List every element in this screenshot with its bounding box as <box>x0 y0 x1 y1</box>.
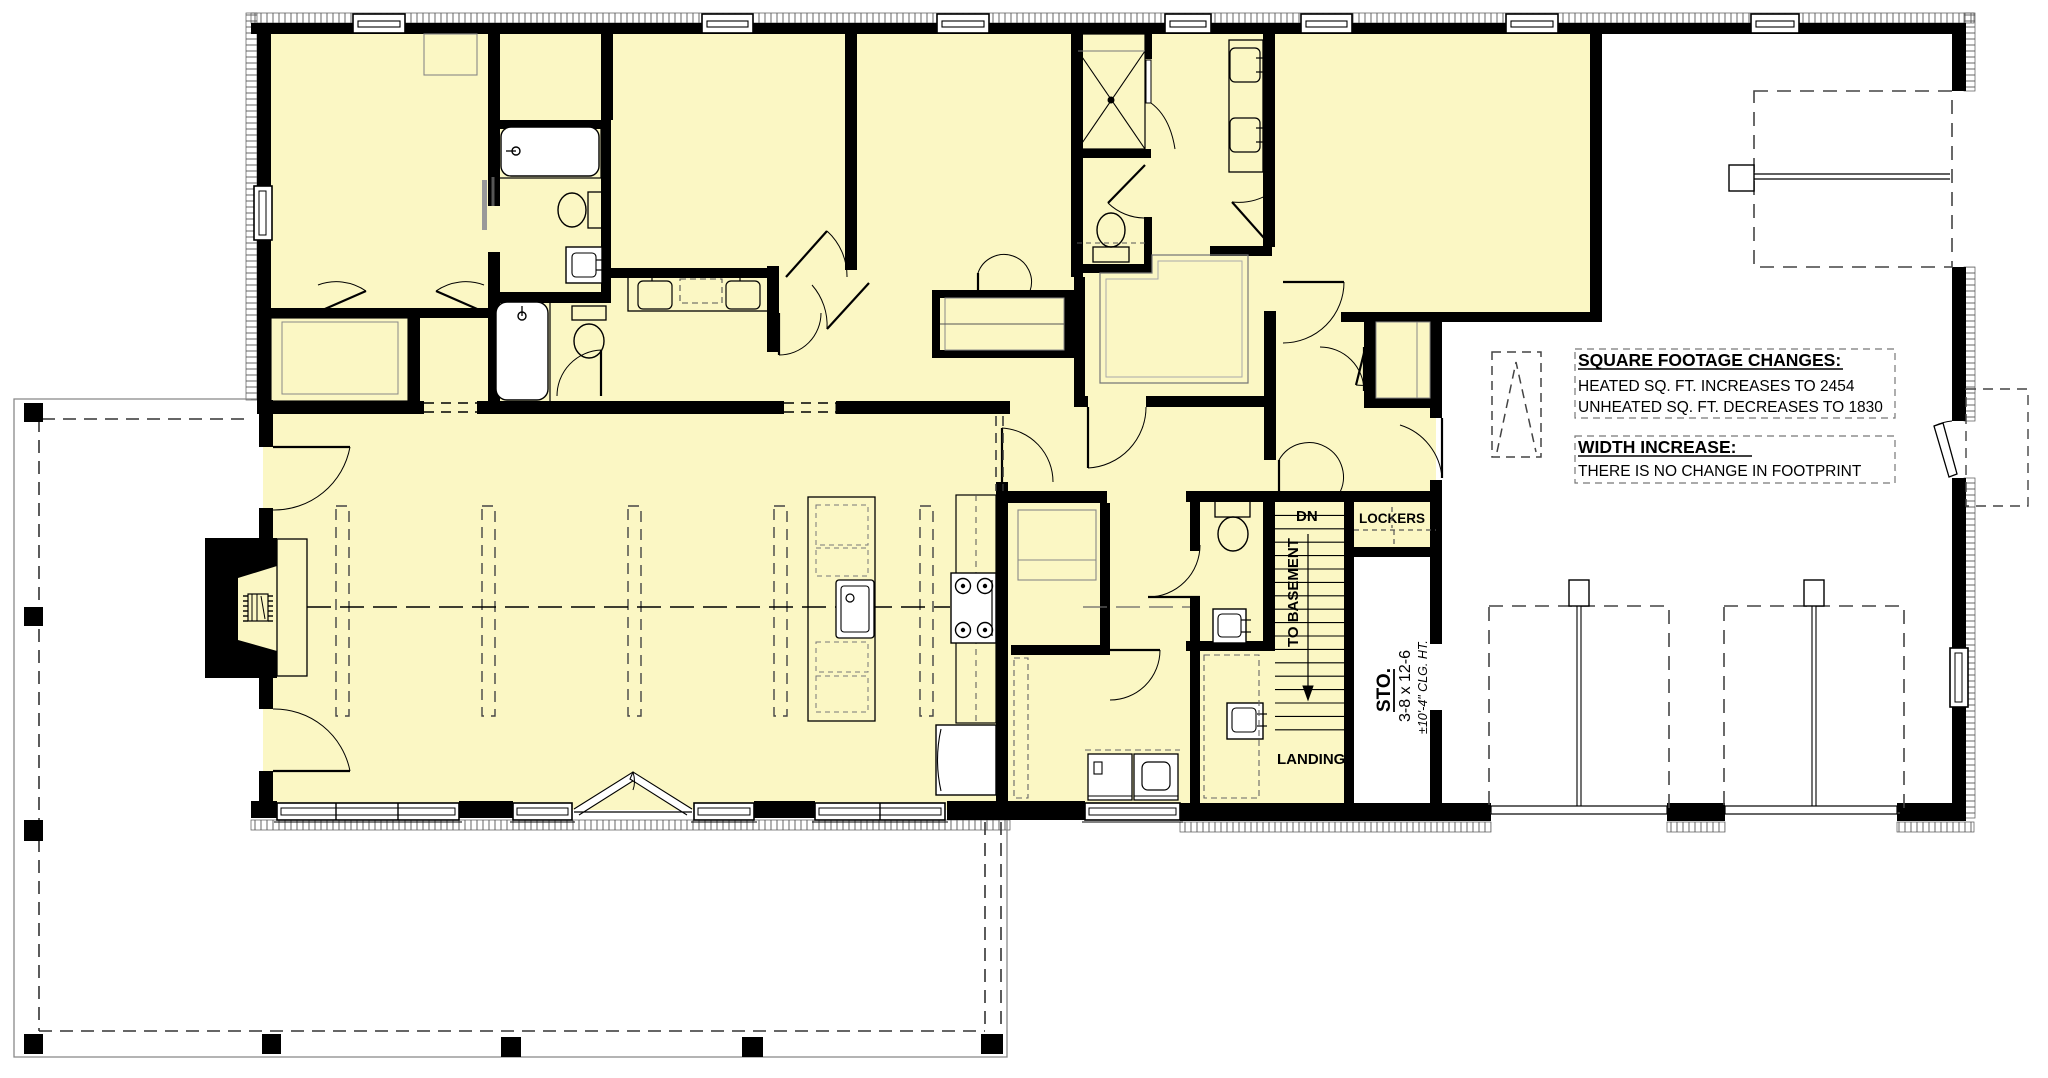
svg-text:SQUARE FOOTAGE CHANGES:: SQUARE FOOTAGE CHANGES: <box>1578 350 1841 370</box>
svg-text:HEATED SQ. FT. INCREASES TO 24: HEATED SQ. FT. INCREASES TO 2454 <box>1578 378 1855 395</box>
svg-text:3-8 x 12-6: 3-8 x 12-6 <box>1397 650 1414 722</box>
svg-text:±10'-4" CLG. HT.: ±10'-4" CLG. HT. <box>1416 640 1430 734</box>
svg-text:STO.: STO. <box>1374 668 1395 712</box>
svg-text:WIDTH INCREASE:: WIDTH INCREASE: <box>1578 437 1736 457</box>
svg-text:UNHEATED SQ. FT. DECREASES TO: UNHEATED SQ. FT. DECREASES TO 1830 <box>1578 399 1883 416</box>
svg-text:LANDING: LANDING <box>1277 751 1345 768</box>
svg-text:TO BASEMENT: TO BASEMENT <box>1285 538 1302 647</box>
svg-text:THERE IS NO CHANGE IN FOOTPRIN: THERE IS NO CHANGE IN FOOTPRINT <box>1578 463 1862 480</box>
svg-text:DN: DN <box>1296 508 1318 525</box>
